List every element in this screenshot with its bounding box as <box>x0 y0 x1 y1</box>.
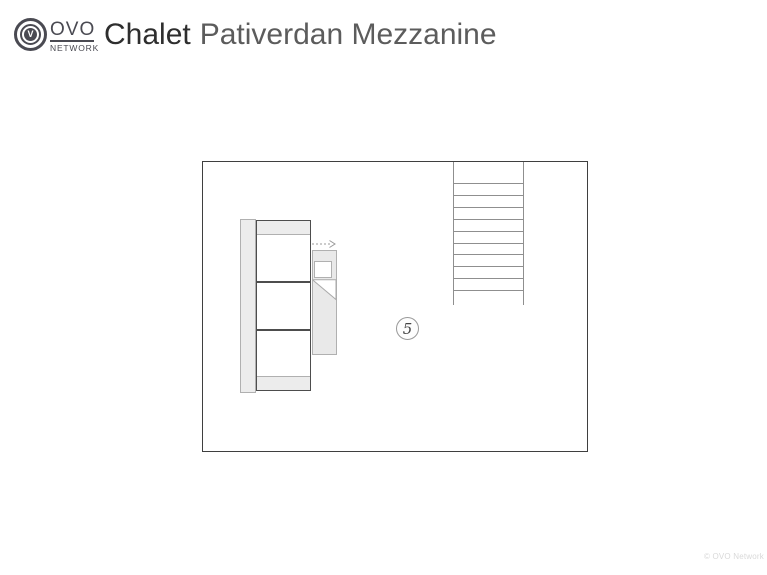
stair-tread <box>454 290 523 291</box>
stair-tread <box>454 254 523 255</box>
direction-arrow-icon <box>310 238 338 250</box>
side-unit-hatch-square <box>314 261 332 278</box>
stair-tread <box>454 207 523 208</box>
hatch-triangle <box>312 279 338 301</box>
logo-letter: V <box>27 30 33 39</box>
sofa-cushion-divider <box>257 281 310 283</box>
sofa-armrest-top <box>257 221 310 235</box>
logo-subtitle: NETWORK <box>50 43 99 53</box>
sofa-armrest-bottom <box>257 376 310 390</box>
stair-tread <box>454 219 523 220</box>
logo-wordmark: OVO <box>50 20 99 39</box>
sofa-cushion-divider <box>257 329 310 331</box>
logo-inner-ring: V <box>20 24 41 45</box>
room-number-badge: 5 <box>396 317 419 340</box>
sofa-backrest <box>240 219 256 393</box>
page-title-name: Pativerdan Mezzanine <box>200 18 497 51</box>
logo-wordmark-block: OVO NETWORK <box>50 20 99 53</box>
logo-underline <box>50 40 94 42</box>
stair-tread <box>454 183 523 184</box>
room-number-text: 5 <box>403 320 413 338</box>
stair-tread <box>454 243 523 244</box>
side-unit <box>312 250 337 355</box>
stairs <box>453 162 524 305</box>
stair-tread <box>454 231 523 232</box>
page-title-chalet: Chalet <box>104 18 191 51</box>
stair-tread <box>454 266 523 267</box>
copyright-watermark: © OVO Network <box>704 552 764 561</box>
sofa-body <box>256 220 311 391</box>
page-title: ChaletPativerdan Mezzanine <box>104 16 497 54</box>
logo-core-disc: V <box>24 28 37 41</box>
stair-tread <box>454 195 523 196</box>
stair-tread <box>454 278 523 279</box>
ovo-network-logo-icon: V <box>14 18 47 51</box>
